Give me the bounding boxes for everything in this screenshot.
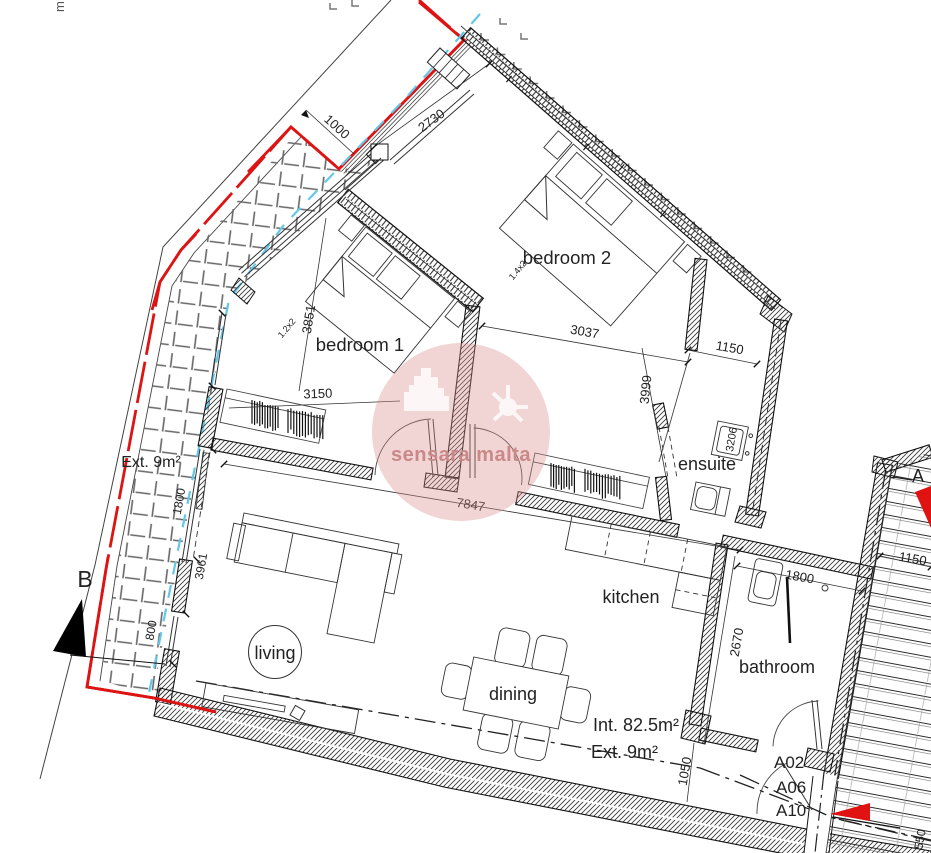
svg-text:3150: 3150 [303,386,332,402]
svg-text:Ext. 9m²: Ext. 9m² [121,454,181,471]
svg-text:m: m [52,1,67,12]
svg-text:bathroom: bathroom [739,657,815,677]
svg-text:sensara malta: sensara malta [391,444,531,466]
svg-text:B: B [77,566,92,592]
svg-text:A02: A02 [774,753,804,772]
svg-text:ensuite: ensuite [678,454,736,474]
svg-text:A: A [912,466,924,486]
svg-text:bedroom 2: bedroom 2 [523,247,611,268]
svg-text:bedroom 1: bedroom 1 [316,334,404,355]
svg-text:living: living [254,643,295,663]
svg-text:Ext. 9m²: Ext. 9m² [591,742,658,762]
svg-text:Int. 82.5m²: Int. 82.5m² [593,715,679,735]
svg-text:A10: A10 [776,801,806,820]
svg-text:A06: A06 [776,778,806,797]
svg-text:3999: 3999 [637,374,655,404]
svg-text:kitchen: kitchen [602,587,659,607]
svg-text:dining: dining [489,684,537,704]
